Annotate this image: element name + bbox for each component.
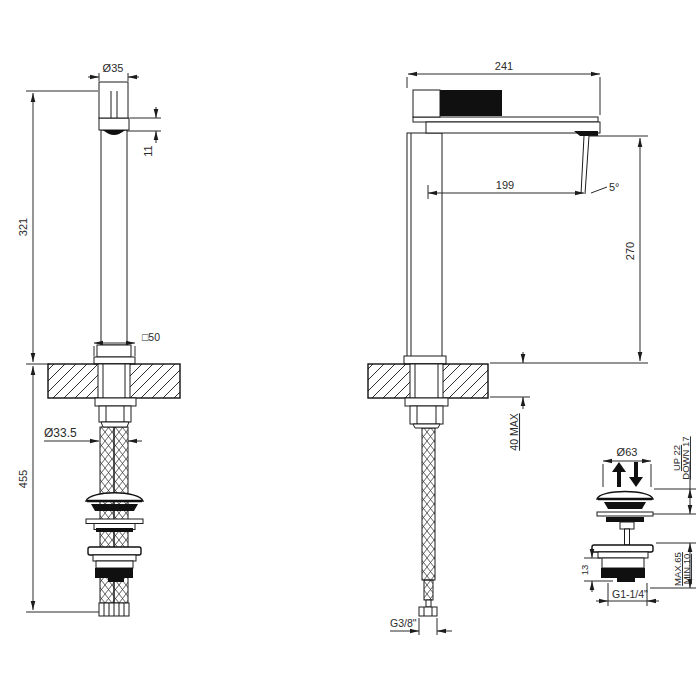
dim-cap-diameter: Ø63 — [617, 446, 638, 458]
dim-height-deck-to-top: 321 — [17, 218, 29, 236]
side-aerator — [574, 131, 598, 136]
dim-total-height-below: 455 — [17, 470, 29, 488]
front-dimensions: Ø35 11 321 455 □50 Ø33.5 — [17, 62, 161, 612]
front-deck-cross-section — [48, 364, 180, 398]
dim-down-travel: DOWN 17 — [680, 436, 691, 479]
side-handle-lever-black — [440, 90, 502, 116]
front-fixing-nut — [95, 398, 136, 427]
front-view: Ø35 11 321 455 □50 Ø33.5 — [17, 62, 180, 616]
dim-spout-total-length: 241 — [495, 60, 513, 72]
dim-spout-height-above-deck: 270 — [624, 242, 636, 260]
dim-supply-thread: G3/8" — [390, 617, 417, 629]
dim-stream-angle: 5° — [609, 181, 620, 193]
up-arrow-icon — [612, 462, 626, 487]
side-faucet-body — [404, 90, 600, 364]
side-supply-hose — [419, 428, 437, 616]
water-stream-line — [585, 136, 589, 194]
dim-waste-thread: G1-1/4" — [612, 588, 648, 600]
waste-detail-view: Ø63 UP 22 DOWN 17 MAX.65 MIN.10 13 — [579, 436, 696, 606]
dim-spout-reach: 199 — [496, 179, 514, 191]
water-stream-line — [581, 136, 584, 194]
technical-drawing-page: Ø35 11 321 455 □50 Ø33.5 — [0, 0, 700, 700]
dim-top-diameter: Ø35 — [103, 62, 124, 74]
dim-deck-thickness: 40 MAX — [508, 413, 520, 450]
side-fixing-nut — [405, 398, 448, 428]
side-handle — [413, 90, 440, 117]
side-deck-cross-section — [368, 364, 488, 398]
dim-clamp-min: MIN.10 — [681, 554, 692, 585]
dim-base-square: □50 — [142, 331, 160, 343]
front-faucet-body — [94, 82, 135, 364]
dim-spout-tip-height: 11 — [142, 145, 154, 156]
faucet-technical-drawing: Ø35 11 321 455 □50 Ø33.5 — [0, 0, 700, 700]
dim-thread-length: 13 — [579, 565, 590, 576]
dim-hose-diameter: Ø33.5 — [44, 426, 77, 440]
waste-detail-parts — [592, 462, 653, 582]
front-handle-knob — [99, 82, 128, 118]
down-arrow-icon — [629, 462, 643, 487]
